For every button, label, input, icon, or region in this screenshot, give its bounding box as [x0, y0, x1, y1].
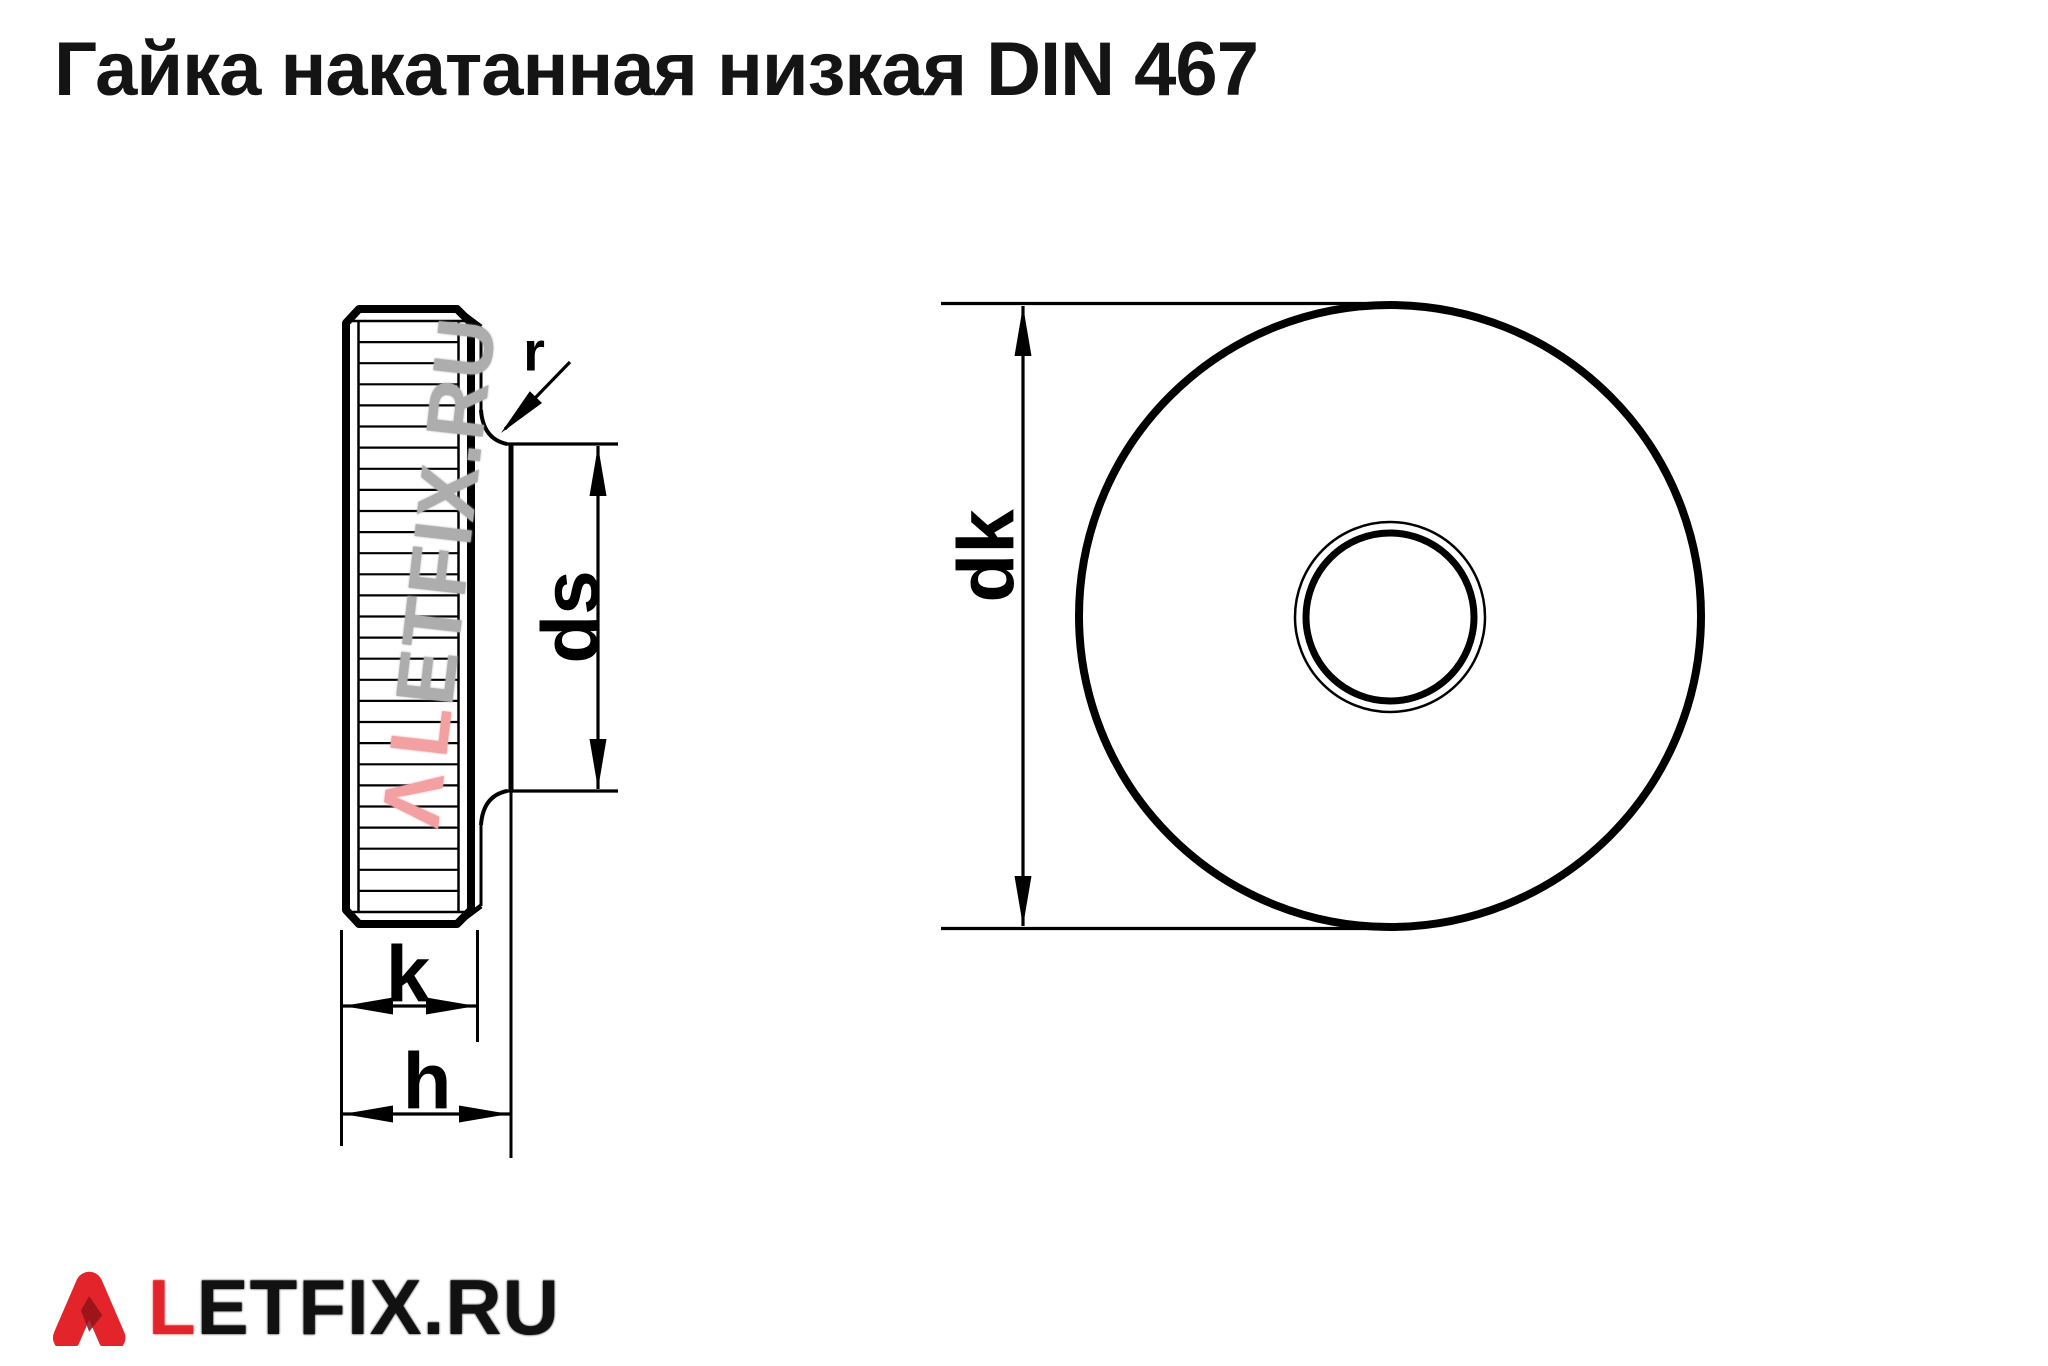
outer-circle — [1079, 305, 1701, 927]
label-ds: ds — [526, 570, 615, 663]
label-dk: dk — [942, 509, 1031, 603]
label-r: r — [523, 320, 545, 383]
dk-arrow-up — [1015, 306, 1032, 356]
watermark-red-letter: L — [373, 699, 469, 761]
hole-chamfer-circle — [1295, 522, 1485, 712]
k-arrow-right — [426, 998, 476, 1015]
logo-text: LETFIX.RU — [148, 1262, 560, 1353]
h-arrow-left — [343, 1106, 393, 1123]
letfix-logo-mark-icon — [50, 1270, 126, 1346]
h-arrow-right — [459, 1106, 509, 1123]
watermark-logo-mark: Λ — [365, 765, 462, 832]
label-k: k — [386, 930, 431, 1019]
ds-arrow-down — [590, 739, 607, 789]
boss-bottom-fillet — [481, 791, 507, 825]
ds-arrow-up — [590, 446, 607, 496]
label-h: h — [403, 1037, 452, 1126]
front-view — [941, 304, 1701, 929]
site-logo: LETFIX.RU — [50, 1262, 560, 1353]
logo-red-letter: L — [148, 1263, 197, 1351]
page: { "page": { "title": "Гайка накатанная н… — [0, 0, 2048, 1366]
hole-circle — [1306, 533, 1474, 701]
technical-drawing: r ds k h dk — [0, 0, 2048, 1366]
logo-black-letters: ETFIX.RU — [197, 1263, 560, 1351]
dk-arrow-down — [1015, 876, 1032, 926]
